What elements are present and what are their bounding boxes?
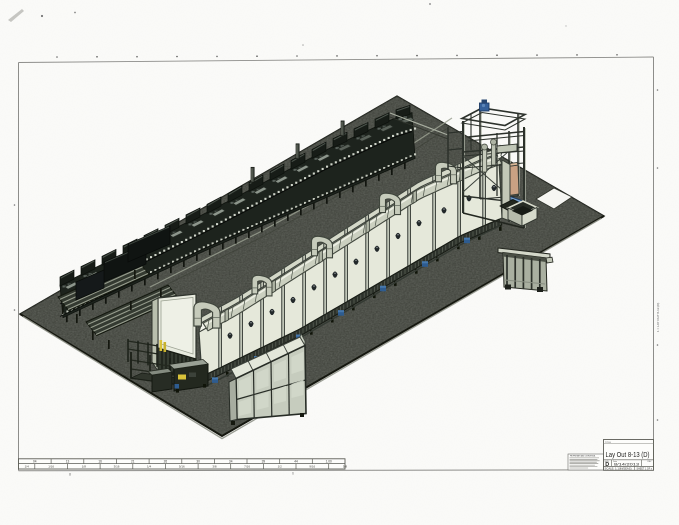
svg-text:3/8: 3/8 xyxy=(212,465,217,469)
svg-text:5/8: 5/8 xyxy=(343,465,348,469)
svg-text:6: 6 xyxy=(292,472,294,476)
svg-text:Lay Out 8-13 (D): Lay Out 8-13 (D) xyxy=(606,450,650,459)
svg-text:1/16: 1/16 xyxy=(48,465,54,469)
svg-text:16: 16 xyxy=(98,460,102,464)
svg-text:SCALE: 1:1(IN/SEAS): SCALE: 1:1(IN/SEAS) xyxy=(605,467,632,470)
svg-text:1.00: 1.00 xyxy=(326,460,332,464)
svg-text:9/16: 9/16 xyxy=(309,465,315,469)
svg-text:1 = LAY OUT 8-13 (D): 1 = LAY OUT 8-13 (D) xyxy=(656,303,660,332)
svg-text:8/14/2013: 8/14/2013 xyxy=(614,462,639,466)
svg-text:1/4: 1/4 xyxy=(25,465,30,469)
svg-text:8: 8 xyxy=(69,473,71,477)
svg-text:30: 30 xyxy=(196,460,200,464)
svg-text:44: 44 xyxy=(294,460,298,464)
svg-text:TITLE: TITLE xyxy=(605,442,611,444)
svg-text:1/4: 1/4 xyxy=(147,465,152,469)
svg-text:04: 04 xyxy=(33,460,37,464)
svg-text:26: 26 xyxy=(164,460,168,464)
svg-text:1/8: 1/8 xyxy=(82,465,87,469)
svg-text:39: 39 xyxy=(262,460,266,464)
svg-text:5/16: 5/16 xyxy=(179,465,185,469)
svg-text:7/16: 7/16 xyxy=(244,465,250,469)
svg-text:1/2: 1/2 xyxy=(278,465,283,469)
svg-text:3/16: 3/16 xyxy=(114,465,120,469)
svg-text:21: 21 xyxy=(131,460,135,464)
svg-text:SHEET 1 OF x: SHEET 1 OF x xyxy=(637,467,653,470)
svg-text:13: 13 xyxy=(66,460,70,464)
svg-text:34: 34 xyxy=(229,460,233,464)
